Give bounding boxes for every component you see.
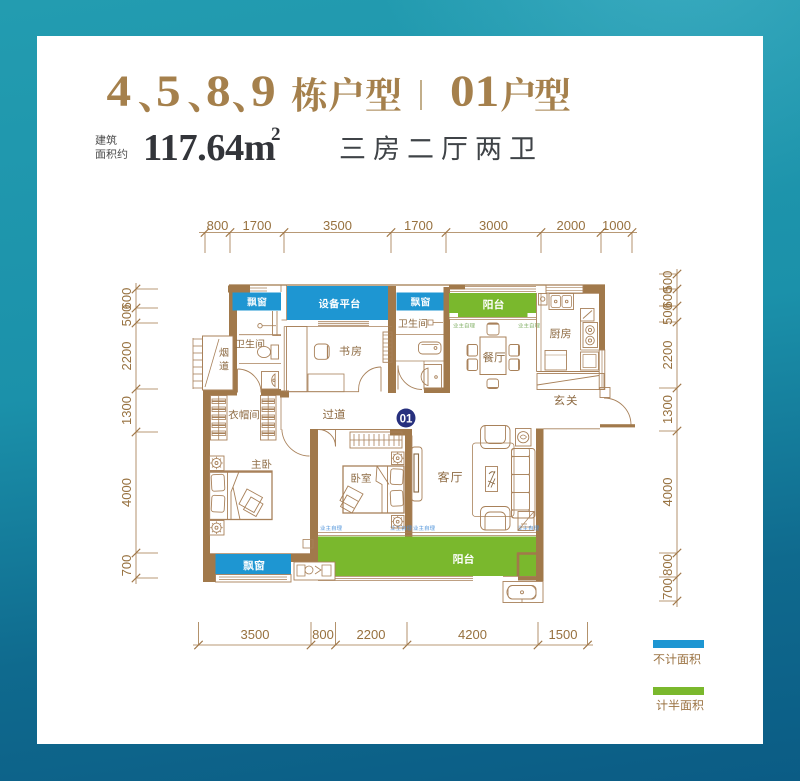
svg-text:01: 01 [450, 67, 499, 116]
svg-text:1000: 1000 [602, 218, 631, 233]
svg-text:3500: 3500 [323, 218, 352, 233]
svg-text:3500: 3500 [241, 627, 270, 642]
svg-text:8: 8 [206, 67, 231, 116]
svg-text:2200: 2200 [660, 341, 675, 370]
svg-text:4: 4 [107, 67, 132, 116]
svg-text:700: 700 [660, 578, 675, 600]
svg-text:4000: 4000 [660, 478, 675, 507]
svg-text:4200: 4200 [458, 627, 487, 642]
svg-text:117.64m: 117.64m [143, 127, 276, 169]
svg-text:1300: 1300 [660, 395, 675, 424]
svg-text:9: 9 [251, 67, 276, 116]
svg-text:800: 800 [312, 627, 334, 642]
svg-text:1700: 1700 [404, 218, 433, 233]
svg-text:800: 800 [207, 218, 229, 233]
svg-text:1500: 1500 [549, 627, 578, 642]
svg-text:2000: 2000 [557, 218, 586, 233]
svg-text:2200: 2200 [357, 627, 386, 642]
svg-text:2200: 2200 [119, 342, 134, 371]
svg-text:500: 500 [119, 305, 134, 327]
svg-text:800: 800 [660, 554, 675, 576]
svg-text:2: 2 [271, 124, 281, 145]
svg-text:700: 700 [119, 555, 134, 577]
svg-text:4000: 4000 [119, 478, 134, 507]
svg-text:500: 500 [660, 303, 675, 325]
svg-text:01: 01 [400, 414, 413, 426]
svg-text:1700: 1700 [243, 218, 272, 233]
svg-text:3000: 3000 [479, 218, 508, 233]
svg-text:5: 5 [156, 67, 181, 116]
svg-text:1300: 1300 [119, 396, 134, 425]
